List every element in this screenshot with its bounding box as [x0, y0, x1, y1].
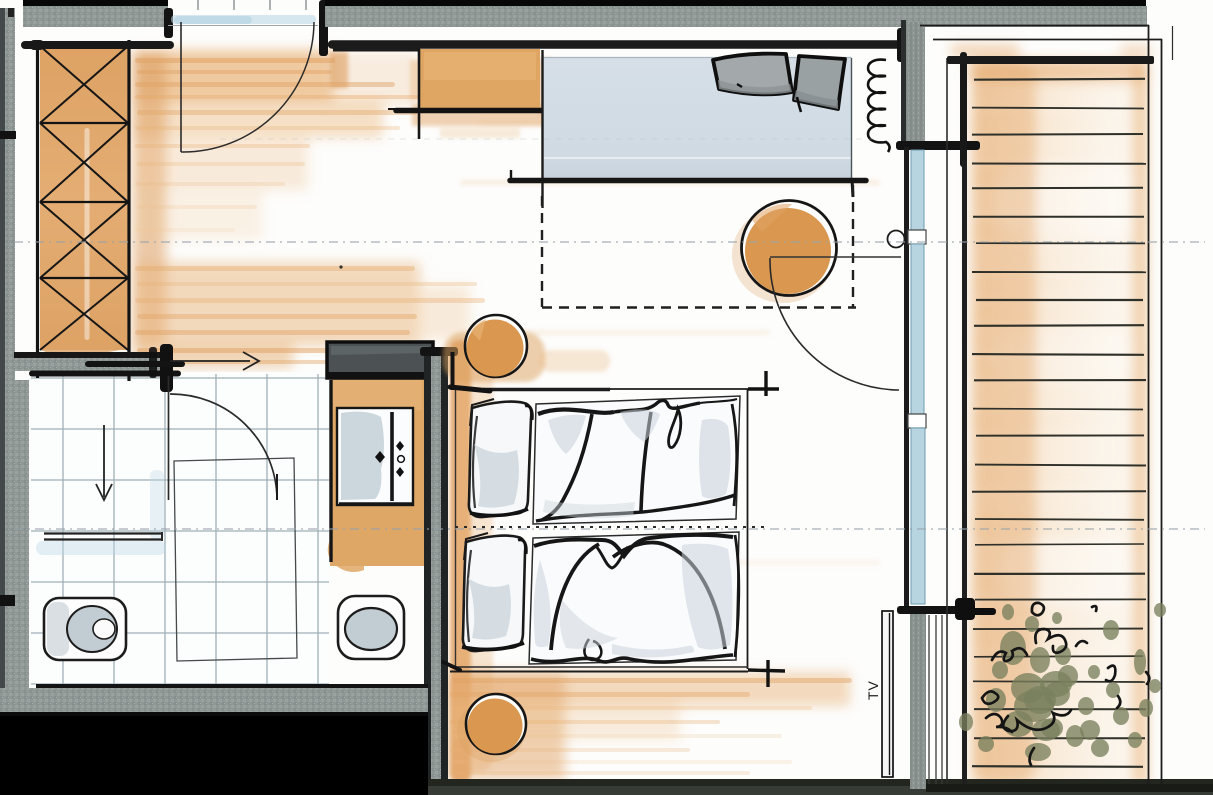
svg-text:TV: TV — [865, 680, 881, 700]
